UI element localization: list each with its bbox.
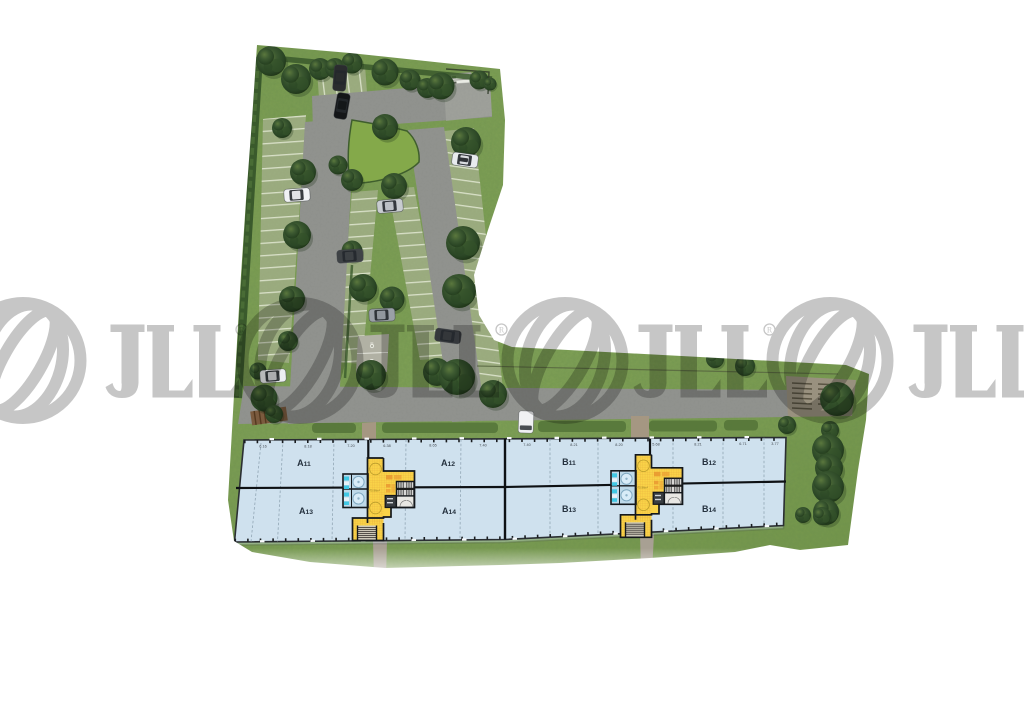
svg-text:R: R [767,326,773,335]
svg-text:8.20: 8.20 [615,443,622,447]
svg-text:7.20: 7.20 [347,444,354,448]
svg-text:6.38: 6.38 [383,444,390,448]
svg-text:≈75.96m²: ≈75.96m² [368,489,380,493]
svg-text:7.40: 7.40 [479,443,486,447]
svg-text:3.77: 3.77 [771,442,778,446]
svg-text:R: R [499,326,505,335]
svg-text:8.21: 8.21 [570,443,577,447]
svg-text:8.21: 8.21 [694,442,701,446]
svg-text:5.68: 5.68 [652,443,659,447]
svg-text:6.71: 6.71 [739,442,746,446]
svg-text:7.40: 7.40 [523,443,530,447]
svg-text:8.65: 8.65 [429,444,436,448]
svg-text:8.18: 8.18 [304,444,311,448]
svg-text:R: R [239,326,245,335]
svg-text:6.16: 6.16 [259,445,266,449]
